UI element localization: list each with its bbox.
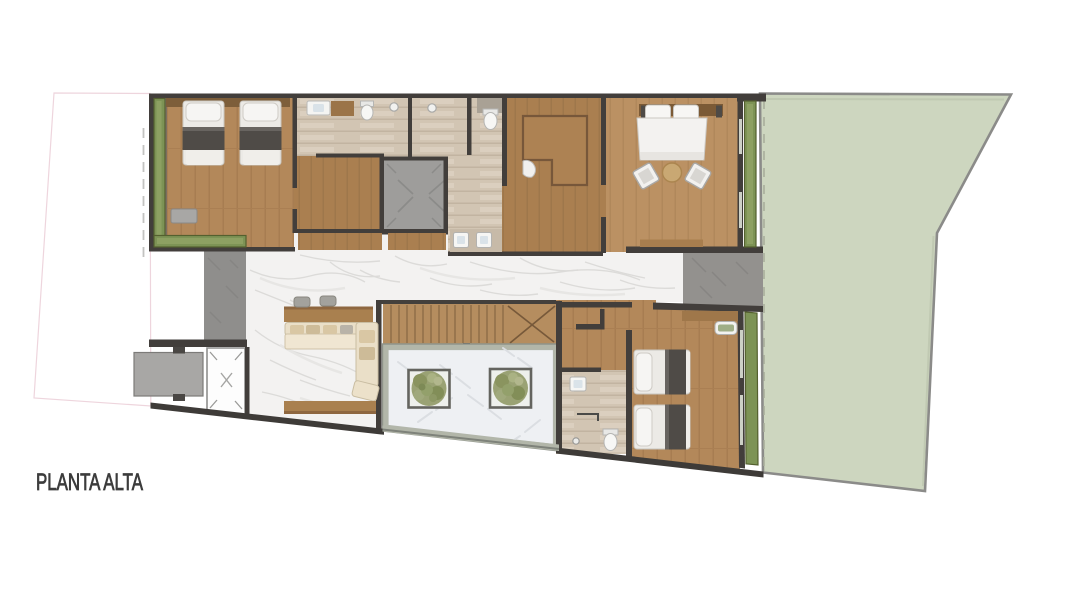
svg-text:PLANTA ALTA: PLANTA ALTA	[36, 469, 143, 496]
